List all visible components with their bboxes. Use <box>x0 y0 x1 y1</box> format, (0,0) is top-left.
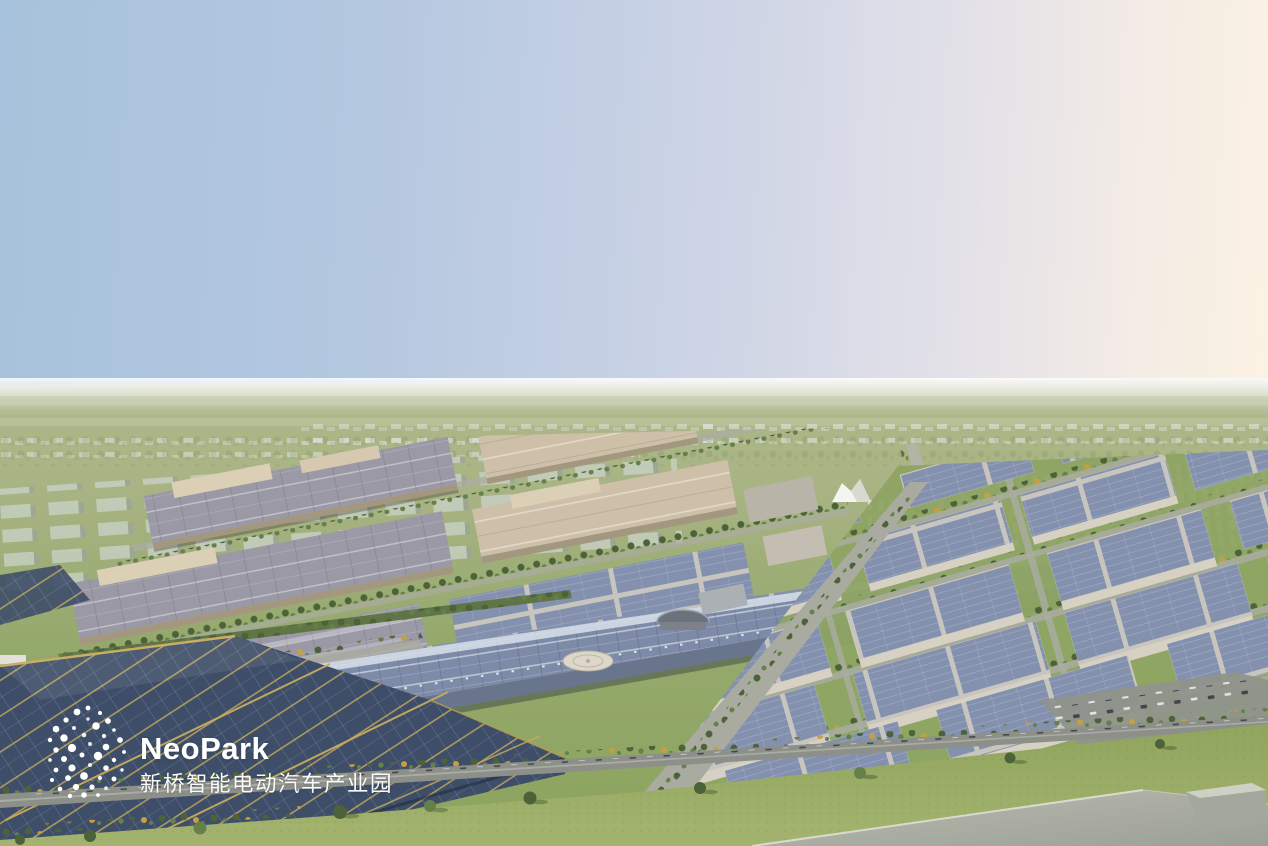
brand-logo: NeoPark 新桥智能电动汽车产业园 <box>42 702 393 802</box>
neopark-dot-cluster-icon <box>42 702 134 802</box>
aerial-render-industrial-park: NeoPark 新桥智能电动汽车产业园 <box>0 0 1268 846</box>
brand-subtitle: 新桥智能电动汽车产业园 <box>140 774 393 796</box>
round-building <box>563 651 613 671</box>
brand-name: NeoPark <box>140 733 393 764</box>
brand-text-block: NeoPark 新桥智能电动汽车产业园 <box>140 733 393 796</box>
